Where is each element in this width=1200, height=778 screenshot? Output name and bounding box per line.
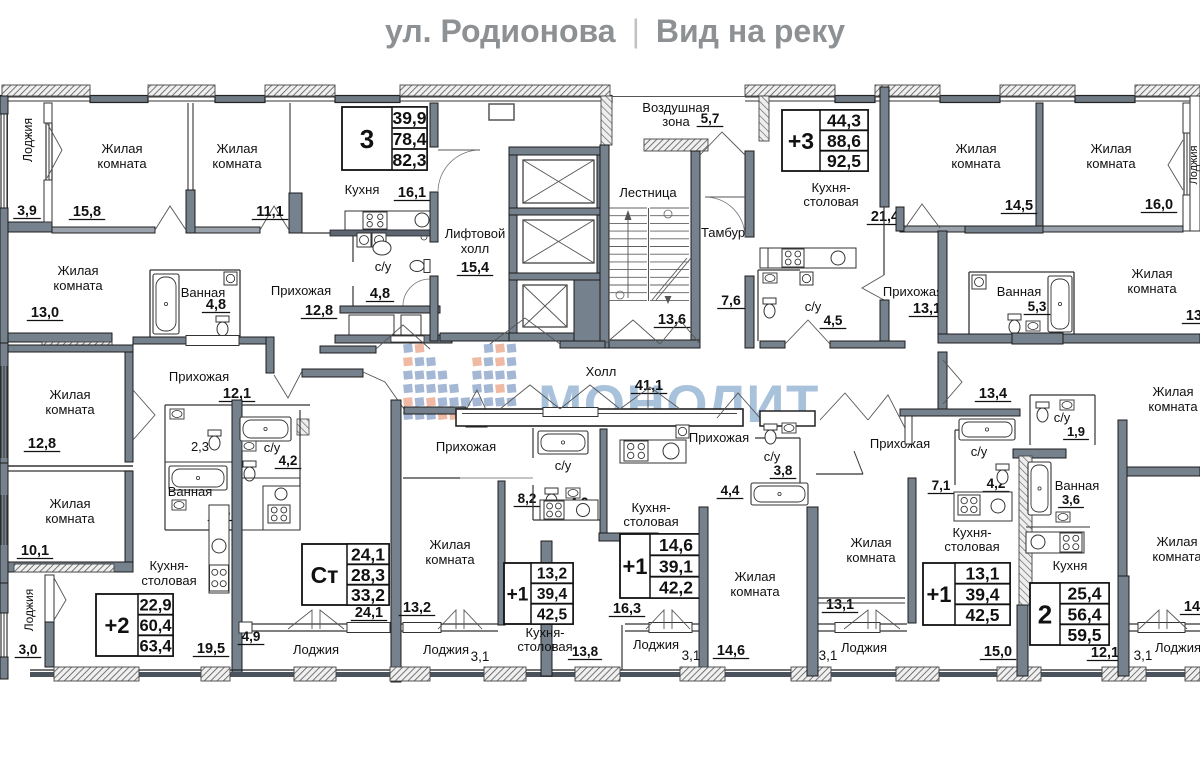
svg-text:42,2: 42,2 [659, 578, 693, 598]
svg-text:Ст: Ст [311, 562, 339, 588]
svg-text:13,2: 13,2 [537, 566, 567, 583]
svg-text:5,7: 5,7 [701, 111, 720, 126]
svg-text:+3: +3 [788, 128, 814, 154]
svg-text:15,0: 15,0 [984, 644, 1012, 660]
svg-text:Кухня-: Кухня- [631, 500, 670, 515]
svg-text:Жилая: Жилая [955, 141, 996, 156]
svg-text:3,1: 3,1 [682, 648, 701, 663]
svg-text:комната: комната [846, 550, 896, 565]
svg-text:60,4: 60,4 [139, 617, 172, 635]
svg-text:12,1: 12,1 [1091, 645, 1119, 661]
svg-text:39,4: 39,4 [537, 586, 568, 603]
svg-text:1,9: 1,9 [1067, 424, 1085, 439]
svg-text:3,1: 3,1 [819, 648, 838, 663]
svg-text:Прихожая: Прихожая [870, 436, 930, 451]
svg-text:10,1: 10,1 [21, 543, 49, 559]
svg-text:комната: комната [212, 156, 262, 171]
svg-text:78,4: 78,4 [392, 129, 426, 149]
svg-text:Лоджия: Лоджия [21, 118, 35, 162]
svg-text:3,9: 3,9 [17, 202, 37, 218]
svg-text:комната: комната [951, 156, 1001, 171]
svg-text:33,2: 33,2 [351, 585, 385, 605]
svg-text:комната: комната [1127, 281, 1177, 296]
svg-text:Прихожая: Прихожая [169, 369, 229, 384]
svg-text:13,0: 13,0 [31, 305, 59, 321]
svg-text:столовая: столовая [141, 573, 196, 588]
svg-text:16,1: 16,1 [398, 185, 426, 201]
svg-text:13,8: 13,8 [572, 644, 599, 659]
svg-text:16,3: 16,3 [613, 601, 641, 617]
svg-text:4,9: 4,9 [242, 629, 261, 644]
svg-text:3,8: 3,8 [774, 463, 793, 478]
svg-text:Лоджия: Лоджия [423, 642, 469, 657]
svg-text:комната: комната [425, 552, 475, 567]
svg-text:столовая: столовая [803, 194, 858, 209]
svg-text:82,3: 82,3 [392, 150, 426, 170]
svg-text:Жилая: Жилая [850, 535, 891, 550]
svg-text:4,4: 4,4 [721, 483, 740, 498]
svg-text:Кухня-: Кухня- [952, 525, 991, 540]
svg-text:7,1: 7,1 [932, 478, 951, 493]
svg-text:Кухня-: Кухня- [811, 180, 850, 195]
svg-text:комната: комната [1148, 399, 1198, 414]
svg-text:комната: комната [1152, 549, 1200, 564]
svg-text:2,3: 2,3 [191, 439, 209, 454]
svg-text:с/у: с/у [764, 449, 781, 464]
svg-text:Жилая: Жилая [216, 141, 257, 156]
svg-text:28,3: 28,3 [351, 565, 385, 585]
svg-text:столовая: столовая [517, 639, 572, 654]
svg-text:с/у: с/у [971, 444, 988, 459]
svg-text:44,3: 44,3 [827, 110, 861, 130]
svg-text:Прихожая: Прихожая [883, 284, 943, 299]
svg-text:ул. Родионова | Вид на реку: ул. Родионова | Вид на реку [385, 13, 845, 49]
svg-text:Жилая: Жилая [49, 496, 90, 511]
svg-text:Ванная: Ванная [997, 284, 1042, 299]
svg-text:14,5: 14,5 [1005, 198, 1033, 214]
svg-text:4,8: 4,8 [206, 297, 226, 313]
svg-text:+1: +1 [926, 582, 951, 607]
svg-text:4,2: 4,2 [279, 453, 298, 468]
svg-text:13,4: 13,4 [979, 386, 1007, 402]
svg-text:59,5: 59,5 [1067, 625, 1101, 645]
svg-text:19,5: 19,5 [197, 641, 225, 657]
svg-text:холл: холл [461, 241, 489, 256]
svg-text:Лоджия: Лоджия [1155, 640, 1200, 655]
svg-text:зона: зона [662, 114, 690, 129]
svg-text:14,6: 14,6 [717, 643, 745, 659]
svg-text:3,0: 3,0 [19, 642, 38, 657]
svg-text:3,6: 3,6 [1062, 492, 1080, 507]
svg-text:Жилая: Жилая [1131, 266, 1172, 281]
svg-text:Ванная: Ванная [168, 484, 213, 499]
svg-text:Жилая: Жилая [1090, 141, 1131, 156]
svg-text:15,8: 15,8 [73, 204, 101, 220]
svg-text:Жилая: Жилая [429, 537, 470, 552]
svg-text:Жилая: Жилая [57, 263, 98, 278]
svg-text:комната: комната [45, 402, 95, 417]
svg-text:5,3: 5,3 [1028, 299, 1047, 314]
svg-text:13,6: 13,6 [658, 312, 686, 328]
svg-text:4,8: 4,8 [370, 286, 390, 302]
svg-text:Лоджия: Лоджия [1188, 145, 1200, 184]
svg-text:63,4: 63,4 [139, 638, 172, 656]
svg-text:3,1: 3,1 [1134, 648, 1153, 663]
svg-text:Жилая: Жилая [1156, 534, 1197, 549]
svg-text:24,1: 24,1 [355, 605, 383, 621]
svg-text:Холл: Холл [586, 364, 617, 379]
svg-text:13,1: 13,1 [913, 301, 941, 317]
svg-text:16,0: 16,0 [1145, 197, 1173, 213]
svg-text:11,1: 11,1 [256, 204, 283, 220]
svg-text:столовая: столовая [623, 514, 678, 529]
svg-text:41,1: 41,1 [635, 378, 663, 394]
svg-text:с/у: с/у [555, 458, 572, 473]
svg-text:12,8: 12,8 [305, 303, 333, 319]
svg-text:3,1: 3,1 [471, 649, 490, 664]
svg-text:Тамбур: Тамбур [701, 225, 745, 240]
svg-text:столовая: столовая [944, 539, 999, 554]
svg-text:Жилая: Жилая [101, 141, 142, 156]
svg-text:комната: комната [730, 584, 780, 599]
svg-text:+2: +2 [104, 613, 129, 638]
svg-text:с/у: с/у [1054, 410, 1071, 425]
svg-text:Прихожая: Прихожая [689, 430, 749, 445]
svg-text:39,9: 39,9 [392, 108, 426, 128]
svg-text:с/у: с/у [375, 259, 392, 274]
svg-text:Кухня: Кухня [1053, 558, 1088, 573]
svg-text:Воздушная: Воздушная [642, 100, 709, 115]
svg-text:Жилая: Жилая [49, 387, 90, 402]
svg-text:Лоджия: Лоджия [841, 640, 887, 655]
svg-text:с/у: с/у [805, 299, 822, 314]
svg-text:13,1: 13,1 [826, 597, 854, 613]
svg-text:Лестница: Лестница [619, 185, 677, 200]
svg-text:Лифтовой: Лифтовой [445, 226, 506, 241]
svg-text:комната: комната [97, 156, 147, 171]
svg-text:13,1: 13,1 [965, 564, 999, 584]
svg-text:Лоджия: Лоджия [22, 589, 36, 632]
svg-text:14,6: 14,6 [659, 535, 693, 555]
svg-text:14,: 14, [1184, 599, 1200, 615]
svg-text:Прихожая: Прихожая [436, 439, 496, 454]
svg-text:42,5: 42,5 [965, 605, 999, 625]
svg-text:Кухня-: Кухня- [149, 558, 188, 573]
svg-text:Кухня: Кухня [345, 182, 380, 197]
svg-text:25,4: 25,4 [1067, 584, 1101, 604]
svg-text:комната: комната [45, 511, 95, 526]
svg-text:39,4: 39,4 [965, 584, 999, 604]
svg-text:13,2: 13,2 [403, 600, 431, 616]
svg-text:комната: комната [1086, 156, 1136, 171]
svg-text:56,4: 56,4 [1067, 604, 1101, 624]
svg-text:Лоджия: Лоджия [633, 637, 679, 652]
svg-text:Прихожая: Прихожая [271, 283, 331, 298]
svg-text:13,: 13, [1186, 308, 1200, 324]
svg-text:15,4: 15,4 [461, 260, 489, 276]
svg-text:7,6: 7,6 [721, 292, 741, 308]
svg-text:Жилая: Жилая [734, 569, 775, 584]
svg-text:Кухня-: Кухня- [525, 625, 564, 640]
svg-text:88,6: 88,6 [827, 131, 861, 151]
svg-text:12,8: 12,8 [28, 436, 56, 452]
svg-text:2: 2 [1038, 599, 1052, 629]
svg-text:комната: комната [53, 278, 103, 293]
svg-text:+1: +1 [507, 584, 529, 605]
svg-text:Лоджия: Лоджия [293, 642, 339, 657]
svg-text:92,5: 92,5 [827, 151, 861, 171]
svg-text:3: 3 [360, 124, 374, 154]
svg-text:4,5: 4,5 [824, 313, 843, 328]
svg-text:Ванная: Ванная [1055, 478, 1100, 493]
svg-text:+1: +1 [622, 554, 647, 579]
svg-text:39,1: 39,1 [659, 556, 693, 576]
svg-text:24,1: 24,1 [351, 544, 385, 564]
svg-text:42,5: 42,5 [537, 606, 568, 623]
svg-text:Жилая: Жилая [1152, 384, 1193, 399]
svg-text:22,9: 22,9 [139, 596, 171, 614]
svg-text:21,4: 21,4 [871, 209, 899, 225]
